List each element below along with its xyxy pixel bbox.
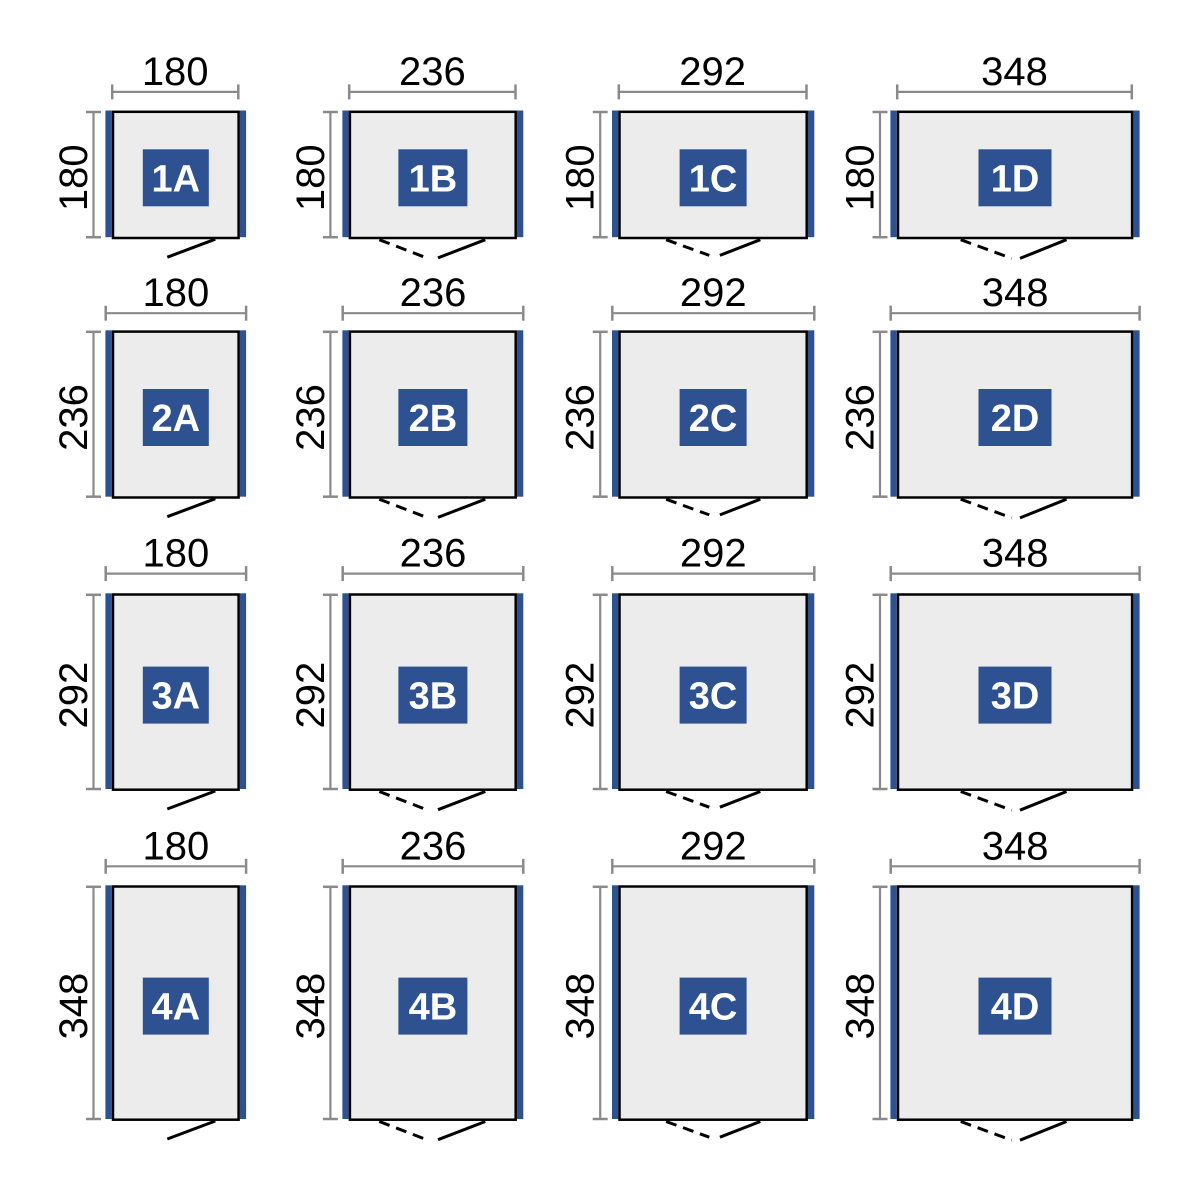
svg-text:292: 292 — [559, 662, 603, 729]
svg-text:180: 180 — [289, 144, 333, 211]
svg-text:4B: 4B — [409, 987, 458, 1029]
svg-text:2A: 2A — [152, 398, 201, 440]
svg-text:180: 180 — [143, 271, 210, 315]
svg-text:180: 180 — [559, 144, 603, 211]
svg-text:292: 292 — [680, 271, 747, 315]
svg-text:292: 292 — [679, 50, 746, 94]
svg-text:348: 348 — [982, 271, 1049, 315]
svg-text:180: 180 — [143, 824, 210, 868]
svg-text:180: 180 — [839, 144, 883, 211]
svg-text:180: 180 — [142, 50, 209, 94]
svg-text:4A: 4A — [152, 987, 201, 1029]
svg-text:292: 292 — [680, 532, 747, 576]
svg-text:3C: 3C — [689, 676, 738, 718]
svg-text:180: 180 — [52, 144, 96, 211]
svg-text:1C: 1C — [689, 158, 738, 200]
svg-text:2D: 2D — [991, 398, 1040, 440]
svg-text:236: 236 — [400, 271, 467, 315]
svg-text:2C: 2C — [689, 398, 738, 440]
svg-text:1B: 1B — [409, 158, 458, 200]
svg-text:1D: 1D — [991, 158, 1040, 200]
svg-text:236: 236 — [559, 384, 603, 451]
svg-text:1A: 1A — [152, 158, 201, 200]
svg-text:348: 348 — [559, 973, 603, 1040]
svg-text:236: 236 — [839, 384, 883, 451]
svg-text:292: 292 — [52, 662, 96, 729]
svg-text:236: 236 — [400, 824, 467, 868]
svg-text:292: 292 — [839, 662, 883, 729]
svg-text:180: 180 — [143, 532, 210, 576]
svg-text:3D: 3D — [991, 676, 1040, 718]
svg-text:348: 348 — [839, 973, 883, 1040]
svg-text:292: 292 — [289, 662, 333, 729]
svg-text:3B: 3B — [409, 676, 458, 718]
svg-text:348: 348 — [982, 824, 1049, 868]
svg-text:236: 236 — [399, 50, 466, 94]
svg-text:236: 236 — [289, 384, 333, 451]
svg-text:236: 236 — [400, 532, 467, 576]
svg-text:236: 236 — [52, 384, 96, 451]
svg-text:348: 348 — [981, 50, 1048, 94]
svg-text:3A: 3A — [152, 676, 201, 718]
svg-text:348: 348 — [982, 532, 1049, 576]
svg-text:4C: 4C — [689, 987, 738, 1029]
svg-text:292: 292 — [680, 824, 747, 868]
svg-text:348: 348 — [289, 973, 333, 1040]
svg-text:2B: 2B — [409, 398, 458, 440]
svg-text:4D: 4D — [991, 987, 1040, 1029]
svg-text:348: 348 — [52, 973, 96, 1040]
